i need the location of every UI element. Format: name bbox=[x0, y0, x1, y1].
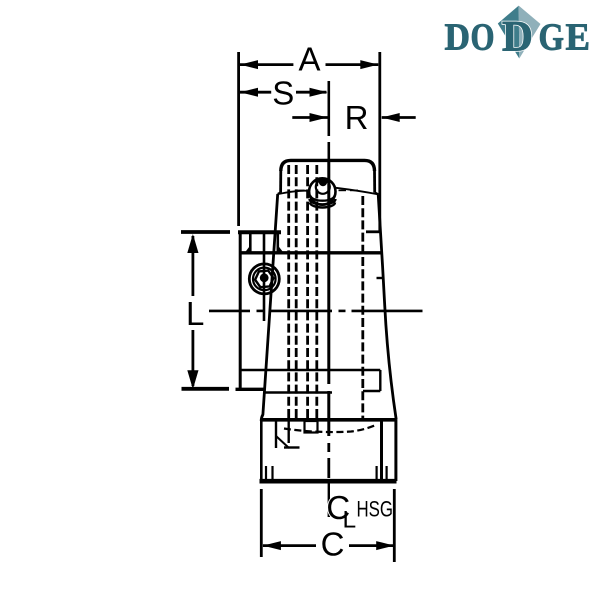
svg-text:S: S bbox=[272, 74, 294, 111]
svg-text:R: R bbox=[345, 99, 369, 136]
svg-text:D: D bbox=[502, 14, 533, 61]
svg-text:E: E bbox=[566, 17, 591, 59]
svg-text:A: A bbox=[298, 40, 320, 77]
svg-text:O: O bbox=[471, 17, 495, 59]
svg-text:D: D bbox=[445, 17, 471, 59]
svg-text:L: L bbox=[186, 295, 204, 332]
svg-text:L: L bbox=[343, 507, 357, 534]
svg-text:G: G bbox=[539, 17, 565, 59]
svg-text:HSG: HSG bbox=[357, 496, 394, 521]
svg-text:C: C bbox=[321, 525, 345, 562]
